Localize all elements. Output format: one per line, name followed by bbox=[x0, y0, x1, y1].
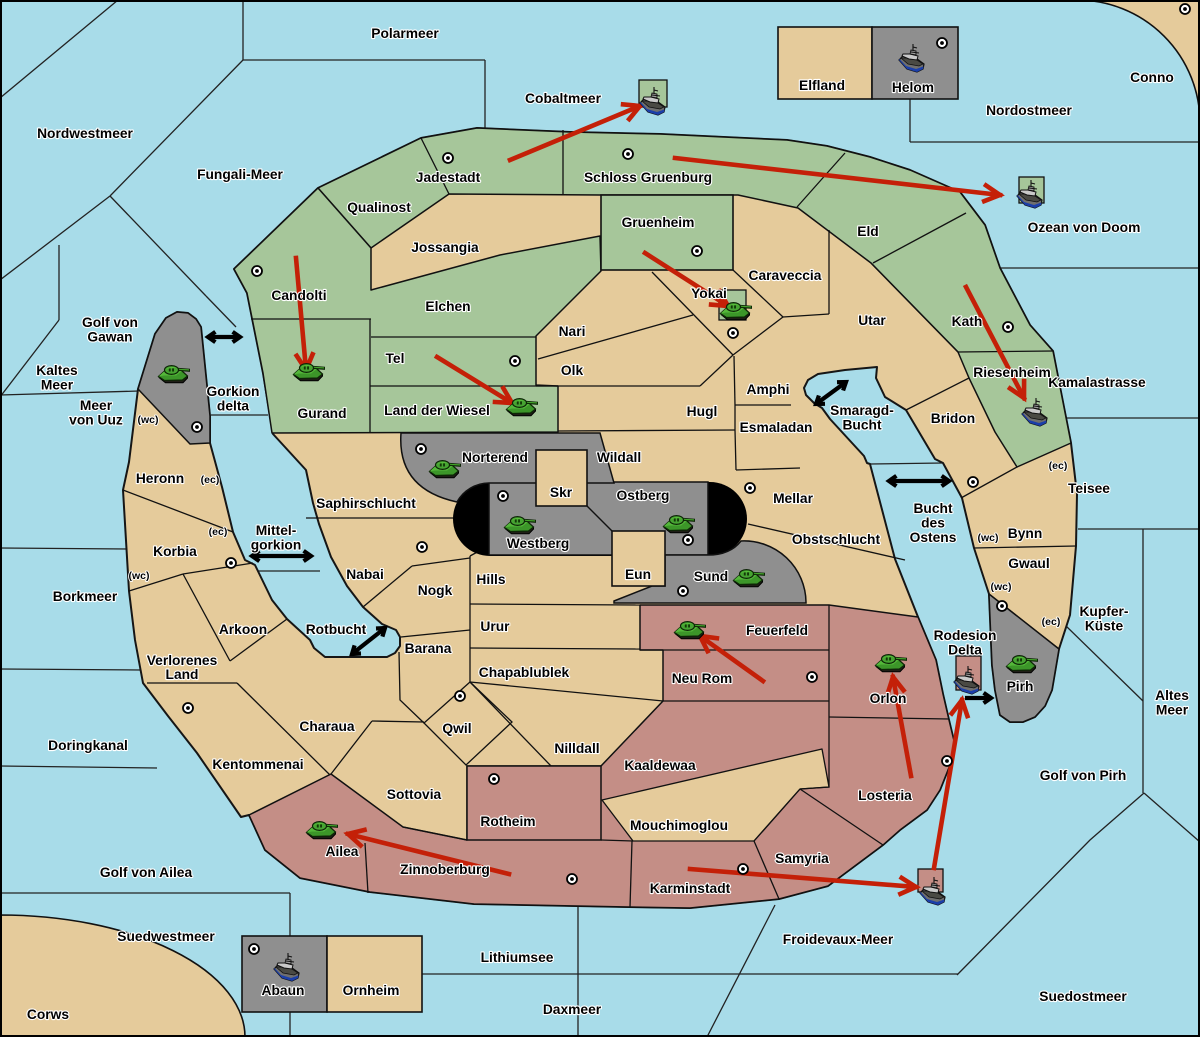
svg-text:Lithiumsee: Lithiumsee bbox=[481, 950, 554, 965]
svg-text:Nordostmeer: Nordostmeer bbox=[986, 103, 1072, 118]
svg-text:Bynn: Bynn bbox=[1008, 526, 1043, 541]
svg-text:Skr: Skr bbox=[550, 485, 573, 500]
svg-text:Bucht: Bucht bbox=[913, 501, 952, 516]
svg-text:Mittel-: Mittel- bbox=[256, 523, 297, 538]
svg-text:des: des bbox=[921, 516, 945, 531]
svg-text:Wildall: Wildall bbox=[597, 450, 641, 465]
svg-text:(wc): (wc) bbox=[991, 581, 1012, 593]
svg-text:Sottovia: Sottovia bbox=[387, 787, 442, 802]
svg-text:Nilldall: Nilldall bbox=[554, 741, 599, 756]
svg-text:Kentommenai: Kentommenai bbox=[212, 757, 303, 772]
svg-text:Smaragd-: Smaragd- bbox=[830, 403, 894, 418]
svg-text:Fungali-Meer: Fungali-Meer bbox=[197, 167, 283, 182]
svg-text:Korbia: Korbia bbox=[153, 544, 197, 559]
svg-text:Meer: Meer bbox=[1156, 703, 1189, 718]
svg-text:Golf von Pirh: Golf von Pirh bbox=[1040, 768, 1127, 783]
svg-text:delta: delta bbox=[217, 399, 250, 414]
svg-text:Feuerfeld: Feuerfeld bbox=[746, 623, 808, 638]
svg-text:Ailea: Ailea bbox=[326, 844, 359, 859]
svg-text:Ostberg: Ostberg bbox=[617, 488, 670, 503]
svg-text:Nari: Nari bbox=[559, 324, 586, 339]
svg-text:Corws: Corws bbox=[27, 1007, 69, 1022]
svg-text:(wc): (wc) bbox=[129, 570, 150, 582]
svg-text:(ec): (ec) bbox=[209, 526, 228, 538]
svg-text:Helom: Helom bbox=[892, 80, 934, 95]
svg-text:Kupfer-: Kupfer- bbox=[1079, 604, 1128, 619]
svg-text:Bridon: Bridon bbox=[931, 411, 975, 426]
svg-text:Gruenheim: Gruenheim bbox=[622, 215, 695, 230]
svg-text:Charaua: Charaua bbox=[299, 719, 355, 734]
svg-text:Pirh: Pirh bbox=[1007, 679, 1034, 694]
svg-text:Zinnoberburg: Zinnoberburg bbox=[400, 862, 490, 877]
svg-text:Eld: Eld bbox=[857, 224, 878, 239]
svg-text:(ec): (ec) bbox=[201, 474, 220, 486]
svg-text:gorkion: gorkion bbox=[251, 538, 302, 553]
svg-text:Golf von: Golf von bbox=[82, 315, 138, 330]
svg-text:Gwaul: Gwaul bbox=[1008, 556, 1049, 571]
svg-text:Gurand: Gurand bbox=[297, 406, 346, 421]
svg-text:Qualinost: Qualinost bbox=[347, 200, 411, 215]
svg-text:Suedostmeer: Suedostmeer bbox=[1039, 989, 1127, 1004]
svg-text:Mouchimoglou: Mouchimoglou bbox=[630, 818, 728, 833]
svg-text:Rotheim: Rotheim bbox=[480, 814, 535, 829]
svg-text:Kaaldewaa: Kaaldewaa bbox=[624, 758, 696, 773]
svg-text:Westberg: Westberg bbox=[507, 536, 570, 551]
svg-text:Nordwestmeer: Nordwestmeer bbox=[37, 126, 133, 141]
svg-text:Küste: Küste bbox=[1085, 619, 1124, 634]
svg-text:Candolti: Candolti bbox=[271, 288, 326, 303]
svg-text:Froidevaux-Meer: Froidevaux-Meer bbox=[783, 932, 894, 947]
svg-text:Riesenheim: Riesenheim bbox=[973, 365, 1050, 380]
svg-text:Delta: Delta bbox=[948, 643, 982, 658]
svg-text:Ozean von Doom: Ozean von Doom bbox=[1028, 220, 1141, 235]
svg-text:Samyria: Samyria bbox=[775, 851, 829, 866]
svg-text:Norterend: Norterend bbox=[462, 450, 528, 465]
svg-text:Obstschlucht: Obstschlucht bbox=[792, 532, 881, 547]
svg-text:Gawan: Gawan bbox=[87, 330, 132, 345]
svg-text:Losteria: Losteria bbox=[858, 788, 912, 803]
svg-text:Hugl: Hugl bbox=[687, 404, 718, 419]
svg-text:Polarmeer: Polarmeer bbox=[371, 26, 439, 41]
svg-text:Daxmeer: Daxmeer bbox=[543, 1002, 602, 1017]
svg-text:Orlon: Orlon bbox=[870, 691, 907, 706]
svg-text:Kamalastrasse: Kamalastrasse bbox=[1048, 375, 1146, 390]
svg-text:Sund: Sund bbox=[694, 569, 729, 584]
svg-text:Land der Wiesel: Land der Wiesel bbox=[384, 403, 490, 418]
svg-text:Saphirschlucht: Saphirschlucht bbox=[316, 496, 416, 511]
svg-text:(wc): (wc) bbox=[138, 414, 159, 426]
svg-text:(wc): (wc) bbox=[978, 532, 999, 544]
svg-text:Bucht: Bucht bbox=[842, 418, 881, 433]
svg-text:Jadestadt: Jadestadt bbox=[416, 170, 481, 185]
svg-text:Rotbucht: Rotbucht bbox=[306, 622, 367, 637]
svg-text:(ec): (ec) bbox=[1049, 460, 1068, 472]
svg-text:Mellar: Mellar bbox=[773, 491, 814, 506]
svg-text:Heronn: Heronn bbox=[136, 471, 184, 486]
svg-text:Conno: Conno bbox=[1130, 70, 1174, 85]
svg-text:Karminstadt: Karminstadt bbox=[650, 881, 731, 896]
svg-text:Golf von Ailea: Golf von Ailea bbox=[100, 865, 193, 880]
svg-text:Borkmeer: Borkmeer bbox=[53, 589, 118, 604]
svg-text:Meer: Meer bbox=[80, 398, 113, 413]
svg-text:Jossangia: Jossangia bbox=[411, 240, 479, 255]
svg-text:Olk: Olk bbox=[561, 363, 584, 378]
svg-text:Arkoon: Arkoon bbox=[219, 622, 267, 637]
svg-text:Caraveccia: Caraveccia bbox=[749, 268, 822, 283]
svg-text:Elchen: Elchen bbox=[425, 299, 470, 314]
svg-text:Land: Land bbox=[166, 667, 199, 682]
svg-text:Nabai: Nabai bbox=[346, 567, 384, 582]
svg-text:Urur: Urur bbox=[480, 619, 510, 634]
svg-text:(ec): (ec) bbox=[1042, 616, 1061, 628]
svg-text:Esmaladan: Esmaladan bbox=[740, 420, 813, 435]
svg-text:Rodesion: Rodesion bbox=[934, 628, 997, 643]
svg-text:Cobaltmeer: Cobaltmeer bbox=[525, 91, 602, 106]
svg-text:Ornheim: Ornheim bbox=[343, 983, 400, 998]
svg-text:Tel: Tel bbox=[386, 351, 405, 366]
svg-text:Amphi: Amphi bbox=[747, 382, 790, 397]
svg-text:Gorkion: Gorkion bbox=[207, 384, 260, 399]
svg-text:Ostens: Ostens bbox=[910, 530, 957, 545]
svg-text:Kaltes: Kaltes bbox=[36, 363, 78, 378]
svg-text:Altes: Altes bbox=[1155, 688, 1189, 703]
svg-text:Elfland: Elfland bbox=[799, 78, 845, 93]
svg-text:Doringkanal: Doringkanal bbox=[48, 738, 128, 753]
svg-text:Nogk: Nogk bbox=[418, 583, 453, 598]
svg-text:Verlorenes: Verlorenes bbox=[147, 653, 218, 668]
svg-text:Schloss Gruenburg: Schloss Gruenburg bbox=[584, 170, 712, 185]
svg-text:Hills: Hills bbox=[476, 572, 505, 587]
svg-text:Yokai: Yokai bbox=[691, 286, 727, 301]
svg-text:Eun: Eun bbox=[625, 567, 651, 582]
svg-text:Kath: Kath bbox=[952, 314, 983, 329]
svg-text:Barana: Barana bbox=[405, 641, 452, 656]
svg-text:Chapablublek: Chapablublek bbox=[479, 665, 570, 680]
svg-text:Teisee: Teisee bbox=[1068, 481, 1110, 496]
svg-text:Meer: Meer bbox=[41, 378, 74, 393]
svg-text:Abaun: Abaun bbox=[262, 983, 305, 998]
svg-text:von Uuz: von Uuz bbox=[69, 413, 123, 428]
svg-text:Neu Rom: Neu Rom bbox=[672, 671, 733, 686]
svg-text:Utar: Utar bbox=[858, 313, 886, 328]
svg-text:Suedwestmeer: Suedwestmeer bbox=[117, 929, 215, 944]
svg-text:Qwil: Qwil bbox=[442, 721, 471, 736]
